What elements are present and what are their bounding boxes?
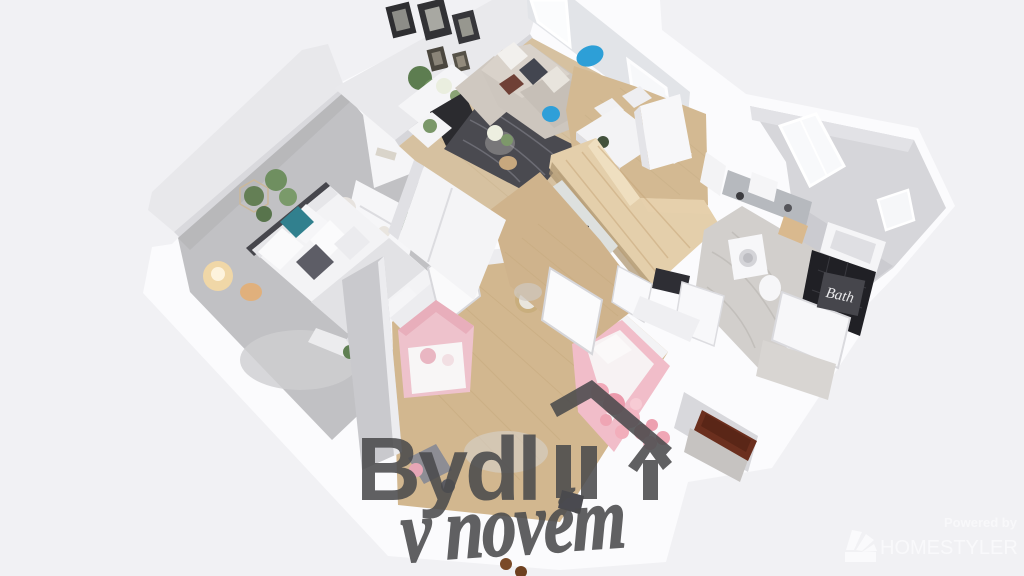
svg-text:v novém: v novém <box>399 469 626 576</box>
svg-text:HOMESTYLER: HOMESTYLER <box>880 537 1018 559</box>
svg-text:Powered by: Powered by <box>944 515 1018 530</box>
